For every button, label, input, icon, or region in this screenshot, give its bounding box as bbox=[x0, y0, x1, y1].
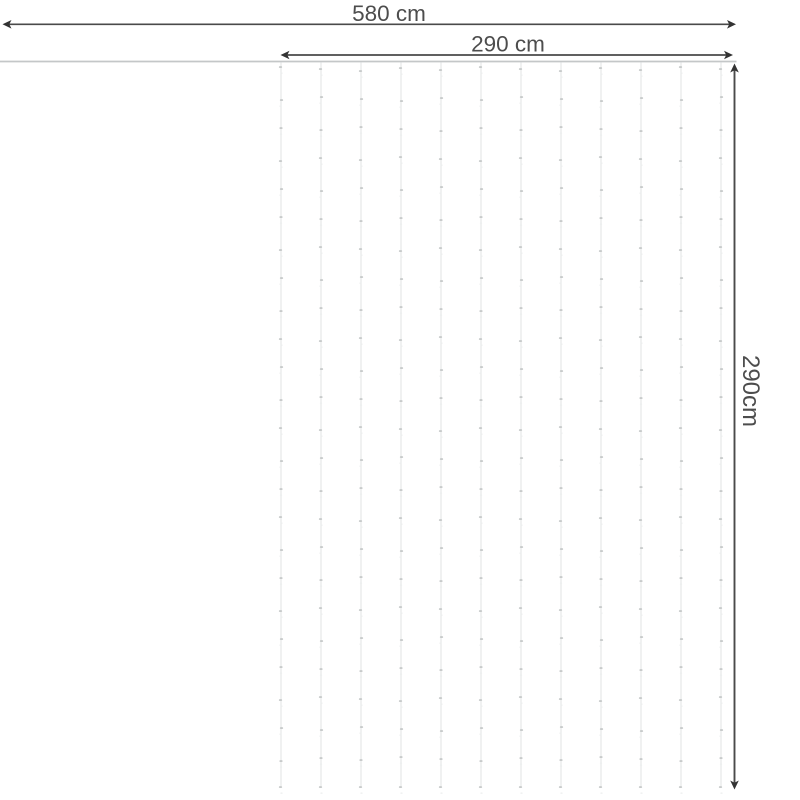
svg-text:290 cm: 290 cm bbox=[471, 32, 545, 57]
svg-text:290cm: 290cm bbox=[737, 355, 764, 427]
svg-text:580 cm: 580 cm bbox=[352, 1, 426, 26]
